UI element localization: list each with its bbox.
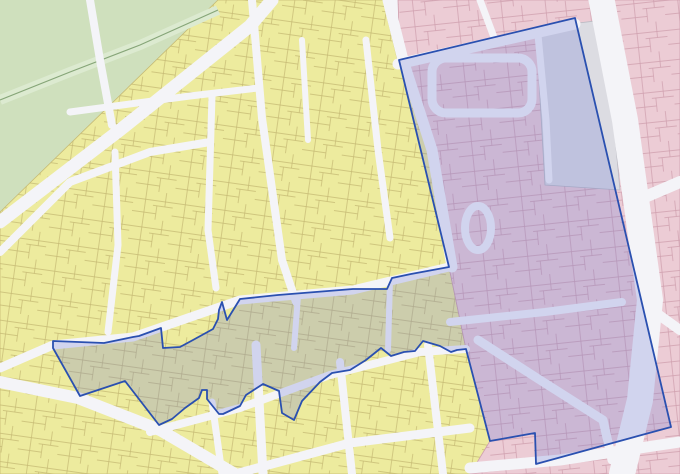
map-layers: [0, 0, 680, 474]
city-map[interactable]: [0, 0, 680, 474]
map-viewport[interactable]: [0, 0, 680, 474]
